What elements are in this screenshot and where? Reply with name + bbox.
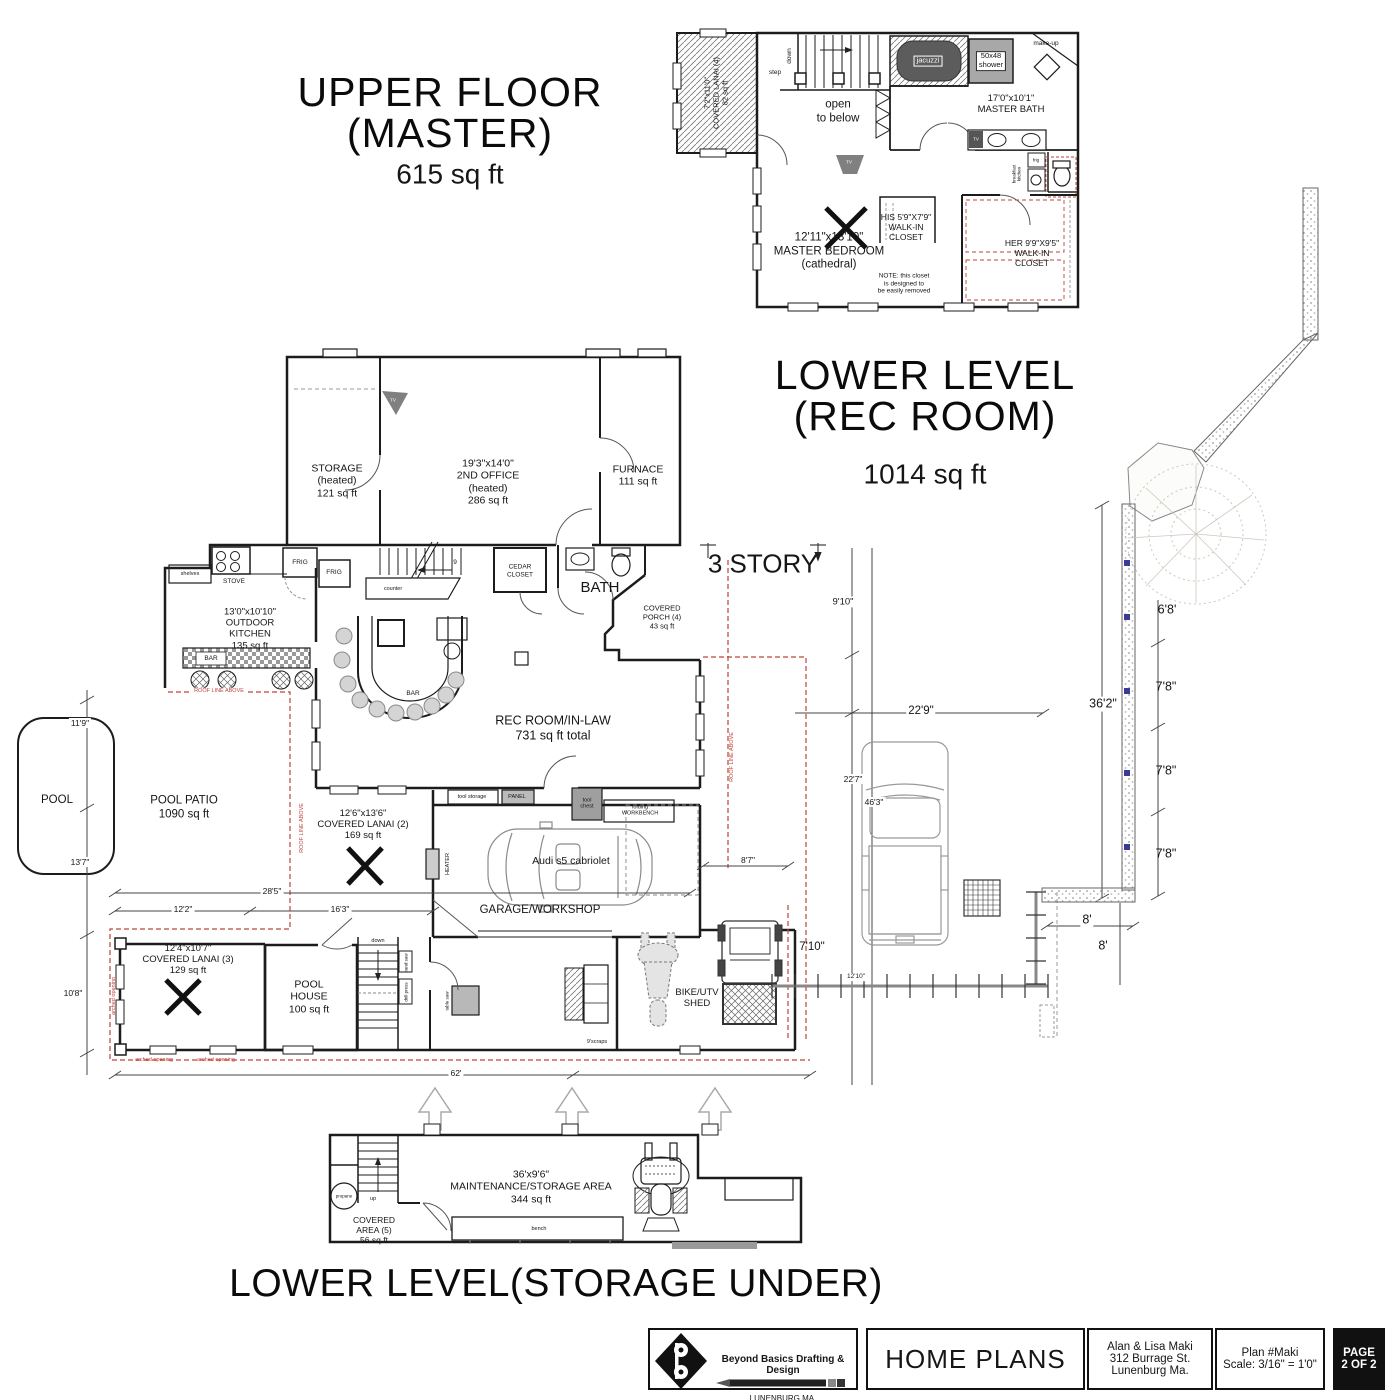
lower-level-plan bbox=[18, 349, 1057, 1060]
company-name: Beyond Basics Drafting & Design bbox=[710, 1354, 856, 1376]
company-location: LUNENBURG MA. bbox=[710, 1394, 856, 1400]
page-number: PAGE 2 OF 2 bbox=[1341, 1347, 1376, 1371]
company-text: Beyond Basics Drafting & Design LUNENBUR… bbox=[710, 1336, 856, 1400]
client-info: Alan & Lisa Maki 312 Burrage St. Lunenbu… bbox=[1107, 1341, 1193, 1377]
home-plans-box: HOME PLANS bbox=[866, 1328, 1085, 1390]
floorplan-sheet: UPPER FLOOR (MASTER) 615 sq ft LOWER LEV… bbox=[0, 0, 1400, 1400]
company-logo-icon bbox=[654, 1332, 708, 1390]
upper-floor-plan bbox=[673, 29, 1078, 311]
home-plans-title: HOME PLANS bbox=[885, 1344, 1066, 1375]
plan-drawing bbox=[0, 0, 1400, 1400]
pencil-icon bbox=[716, 1378, 846, 1388]
plan-scale-box: Plan #Maki Scale: 3/16" = 1'0" bbox=[1215, 1328, 1325, 1390]
logo-box: Beyond Basics Drafting & Design LUNENBUR… bbox=[648, 1328, 858, 1390]
plan-scale-info: Plan #Maki Scale: 3/16" = 1'0" bbox=[1223, 1347, 1317, 1371]
storage-level-plan bbox=[330, 1124, 801, 1249]
page-number-box: PAGE 2 OF 2 bbox=[1333, 1328, 1385, 1390]
client-box: Alan & Lisa Maki 312 Burrage St. Lunenbu… bbox=[1087, 1328, 1213, 1390]
